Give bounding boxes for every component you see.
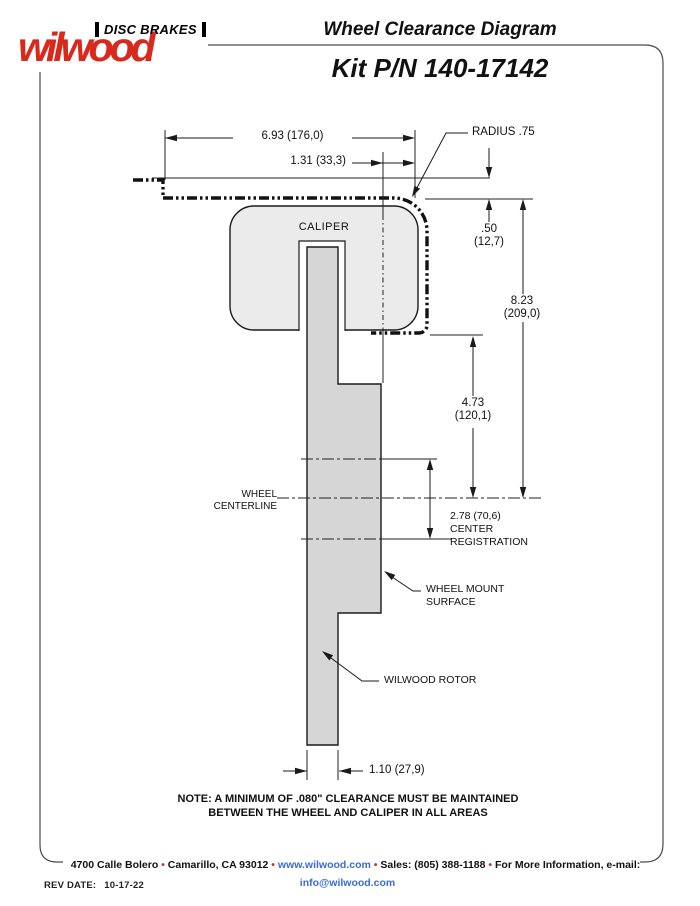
document-title: Wheel Clearance Diagram (240, 19, 640, 41)
wilwood-logo: wilwood DISC BRAKES (18, 20, 218, 78)
wheel-clearance-diagram-page: wilwood DISC BRAKES Wheel Clearance Diag… (0, 0, 700, 906)
clearance-note-line2: BETWEEN THE WHEEL AND CALIPER IN ALL ARE… (98, 806, 598, 820)
caliper-label: CALIPER (282, 221, 366, 233)
footer-city: Camarillo, CA 93012 (168, 859, 269, 871)
dim-473-in: 4.73 (443, 397, 503, 409)
footer-bullet: • (161, 859, 165, 871)
wheel-centerline-line2: CENTERLINE (170, 501, 277, 513)
dim-width-6-93: 6.93 (176,0) (235, 130, 350, 142)
dim-50-in: .50 (459, 223, 519, 235)
footer-address-bar: 4700 Calle Bolero • Camarillo, CA 93012 … (40, 855, 663, 891)
wheel-centerline-label: WHEEL CENTERLINE (170, 489, 277, 513)
footer-bullet: • (488, 859, 492, 871)
center-registration-line3: REGISTRATION (450, 536, 528, 549)
dim-50-mm: (12,7) (459, 236, 519, 248)
dim-rotor-width-1-10: 1.10 (27,9) (369, 764, 425, 776)
footer-address: 4700 Calle Bolero (71, 859, 159, 871)
wheel-mount-surface-callout: WHEEL MOUNT SURFACE (426, 583, 504, 609)
wheel-centerline-line1: WHEEL (170, 489, 277, 501)
dim-823-mm: (209,0) (492, 308, 552, 320)
footer-more-info: For More Information, e-mail: (495, 859, 640, 871)
footer-bullet: • (374, 859, 378, 871)
clearance-note-line1: NOTE: A MINIMUM OF .080" CLEARANCE MUST … (98, 792, 598, 806)
footer-email-link[interactable]: info@wilwood.com (300, 877, 395, 889)
radius-callout: RADIUS .75 (472, 126, 535, 138)
dim-473-mm: (120,1) (443, 410, 503, 422)
center-registration-value: 2.78 (70,6) (450, 510, 528, 523)
wilwood-rotor-callout: WILWOOD ROTOR (384, 674, 476, 687)
footer-sales-phone: Sales: (805) 388-1188 (380, 859, 485, 871)
footer-website-link[interactable]: www.wilwood.com (278, 859, 371, 871)
dim-823-in: 8.23 (492, 295, 552, 307)
center-registration-callout: 2.78 (70,6) CENTER REGISTRATION (450, 510, 528, 549)
disc-brakes-label: DISC BRAKES (95, 22, 206, 37)
wheel-mount-line1: WHEEL MOUNT (426, 583, 504, 596)
kit-part-number-title: Kit P/N 140-17142 (240, 53, 640, 84)
wheel-mount-line2: SURFACE (426, 596, 504, 609)
diagram-canvas (0, 0, 700, 906)
center-registration-line2: CENTER (450, 523, 528, 536)
footer-bullet: • (271, 859, 275, 871)
dim-offset-1-31: 1.31 (33,3) (264, 155, 346, 167)
clearance-note: NOTE: A MINIMUM OF .080" CLEARANCE MUST … (98, 792, 598, 820)
